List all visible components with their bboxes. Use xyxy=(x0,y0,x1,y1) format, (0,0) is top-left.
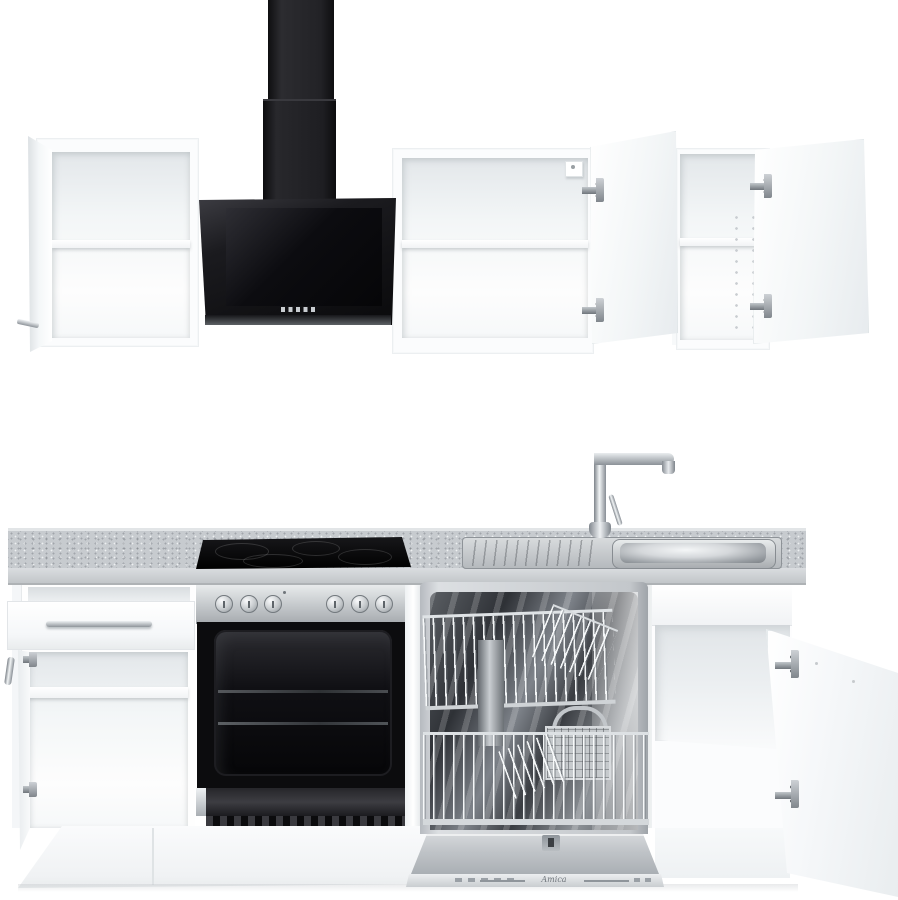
hood-control-buttons xyxy=(281,307,317,312)
dishwasher-control-icons xyxy=(634,878,652,882)
sink-bowl xyxy=(620,543,766,563)
door-catch-pin xyxy=(571,165,575,169)
cooktop-zone xyxy=(338,549,392,565)
oven-knob xyxy=(375,595,393,613)
base-cabinet-left-interior xyxy=(28,652,188,828)
wall-cabinet-left-door-open xyxy=(28,136,52,352)
plinth-seam xyxy=(152,828,154,885)
dishwasher-control-slider xyxy=(584,880,629,882)
wall-cabinet-middle-interior xyxy=(402,158,588,338)
cooktop-zone xyxy=(292,541,340,556)
sink-cabinet-floor xyxy=(655,740,790,829)
sink-drainer xyxy=(466,540,594,566)
hood-chimney-upper xyxy=(268,0,334,100)
dishwasher-brand-text: Amica xyxy=(534,875,574,885)
hinge-icon xyxy=(582,298,604,322)
oven-knob xyxy=(326,595,344,613)
wall-cabinet-left-shelf xyxy=(52,240,190,248)
oven-door-side-trim xyxy=(196,788,206,816)
hinge-icon xyxy=(23,782,37,797)
dishwasher-door-latch-slot xyxy=(548,838,554,847)
oven-rack xyxy=(218,690,388,693)
countertop-front-edge xyxy=(8,568,806,583)
drawer-cavity xyxy=(28,587,190,601)
hinge-icon xyxy=(582,178,604,202)
faucet-lever-handle xyxy=(608,494,623,526)
hinge-icon xyxy=(750,294,772,318)
oven-knob xyxy=(240,595,258,613)
cooktop-zone xyxy=(243,554,303,568)
plinth-left xyxy=(18,826,440,888)
oven-door-open-flat xyxy=(196,788,418,816)
wall-cabinet-middle-shelf xyxy=(402,240,588,248)
oven-knob xyxy=(351,595,369,613)
hinge-icon xyxy=(23,652,37,667)
faucet-base xyxy=(589,522,611,538)
shelf-pin-holes-column xyxy=(735,212,738,332)
cabinet-partition-panel xyxy=(405,585,421,830)
oven-indicator-dot xyxy=(283,591,286,594)
oven-cavity-liner xyxy=(214,630,392,776)
plinth-right xyxy=(655,828,790,878)
hood-chimney-lower xyxy=(263,99,336,202)
sink-cabinet-top-rail xyxy=(652,585,792,626)
dishwasher-spray-tower xyxy=(478,640,504,746)
base-cabinet-left-shelf xyxy=(28,687,188,698)
dishwasher-control-slider xyxy=(480,880,525,882)
hinge-icon xyxy=(750,174,772,198)
wall-cabinet-middle-door-catch xyxy=(565,161,583,177)
oven-rack xyxy=(218,722,388,725)
kitchen-product-photo: Amica xyxy=(0,0,898,900)
hood-glass-screen xyxy=(226,208,382,306)
countertop-bottom-line xyxy=(8,583,806,585)
faucet-spout-tip xyxy=(662,461,675,474)
door-screw-dot xyxy=(815,662,818,665)
wall-cabinet-right-shelf xyxy=(680,238,762,246)
door-screw-dot xyxy=(852,680,855,683)
drawer-handle xyxy=(46,621,152,627)
hood-bottom-edge xyxy=(205,315,391,325)
dishwasher-door-open-flat xyxy=(411,834,659,874)
hinge-icon xyxy=(775,650,799,678)
oven-knob xyxy=(215,595,233,613)
hinge-icon xyxy=(775,780,799,808)
oven-knob xyxy=(264,595,282,613)
